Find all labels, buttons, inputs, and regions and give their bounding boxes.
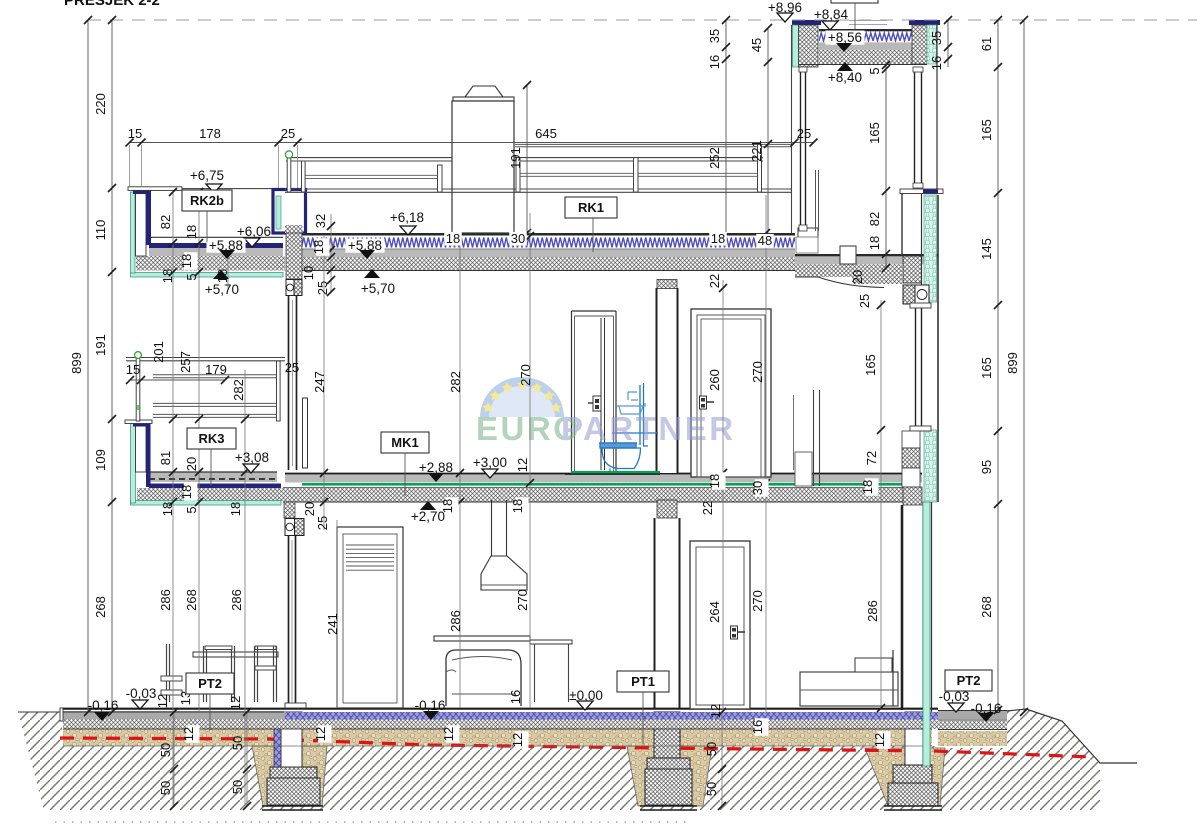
svg-text:12: 12 [872,733,887,747]
svg-text:5: 5 [867,67,882,74]
svg-text:268: 268 [979,596,994,618]
svg-text:35: 35 [707,29,722,43]
svg-text:645: 645 [535,126,557,141]
svg-text:RK2b: RK2b [190,193,224,208]
svg-text:286: 286 [448,610,463,632]
svg-text:165: 165 [863,354,878,376]
svg-text:72: 72 [864,451,879,465]
svg-text:18: 18 [711,231,725,246]
svg-text:5: 5 [184,273,199,280]
svg-text:+5,70: +5,70 [361,281,395,296]
svg-text:5: 5 [184,506,199,513]
svg-text:270: 270 [515,589,530,611]
svg-text:18: 18 [228,502,243,516]
svg-text:252: 252 [707,147,722,169]
svg-text:95: 95 [979,460,994,474]
svg-text:270: 270 [750,361,765,383]
svg-text:145: 145 [979,238,994,260]
svg-text:18: 18 [707,474,722,488]
svg-text:-0,16: -0,16 [88,698,119,713]
svg-text:12: 12 [313,727,328,741]
svg-text:+6,18: +6,18 [390,210,424,225]
svg-text:18: 18 [179,485,194,499]
svg-text:241: 241 [325,613,340,635]
svg-text:286: 286 [229,589,244,611]
svg-text:247: 247 [312,371,327,393]
svg-text:16: 16 [508,690,523,704]
svg-text:25: 25 [857,294,872,308]
svg-text:48: 48 [758,233,772,248]
svg-text:18: 18 [446,231,460,246]
svg-text:191: 191 [508,147,523,169]
svg-text:50: 50 [158,781,173,795]
svg-text:32: 32 [313,214,328,228]
svg-text:PT2: PT2 [957,673,981,688]
svg-text:16: 16 [750,720,765,734]
svg-text:25: 25 [315,516,330,530]
svg-text:20: 20 [184,457,199,471]
svg-text:22: 22 [700,501,715,515]
svg-text:15: 15 [128,126,142,141]
svg-text:+8,56: +8,56 [828,30,862,45]
svg-text:12: 12 [181,727,196,741]
svg-text:81: 81 [158,451,173,465]
svg-text:+2,88: +2,88 [419,460,453,475]
svg-text:61: 61 [979,37,994,51]
svg-text:899: 899 [69,352,84,374]
svg-text:50: 50 [704,782,719,796]
svg-text:282: 282 [231,379,246,401]
svg-text:201: 201 [151,341,166,363]
svg-text:268: 268 [93,596,108,618]
svg-text:257: 257 [178,351,193,373]
svg-text:109: 109 [93,449,108,471]
svg-text:82: 82 [867,212,882,226]
svg-text:35: 35 [929,31,944,45]
svg-text:270: 270 [750,590,765,612]
svg-text:+8,84: +8,84 [814,7,849,22]
svg-text:RK1: RK1 [578,200,604,215]
svg-text:286: 286 [865,600,880,622]
svg-text:16: 16 [707,55,722,69]
svg-text:282: 282 [448,371,463,393]
svg-text:25: 25 [285,360,299,375]
svg-text:PT2: PT2 [198,676,222,691]
svg-text:178: 178 [199,126,221,141]
svg-text:10: 10 [301,266,316,280]
svg-text:18: 18 [160,269,175,283]
svg-text:PT1: PT1 [631,674,655,689]
svg-text:220: 220 [93,93,108,115]
svg-text:25: 25 [315,281,330,295]
svg-text:-0,03: -0,03 [126,686,157,701]
svg-text:110: 110 [93,220,108,241]
svg-text:RK3: RK3 [198,431,224,446]
svg-text:50: 50 [230,780,245,794]
svg-text:12: 12 [228,696,243,710]
svg-text:18: 18 [184,225,199,239]
svg-text:50: 50 [704,742,719,756]
svg-text:12: 12 [155,694,170,708]
svg-text:286: 286 [158,589,173,611]
svg-text:-0,16: -0,16 [415,698,446,713]
svg-text:268: 268 [184,589,199,611]
svg-text:16: 16 [929,56,944,70]
svg-text:18: 18 [860,480,875,494]
svg-text:45: 45 [749,38,764,52]
svg-text:12: 12 [708,704,723,718]
svg-text:+2,70: +2,70 [411,509,445,524]
svg-text:22: 22 [707,274,722,288]
svg-text:899: 899 [1005,352,1020,374]
svg-text:12: 12 [510,733,525,747]
svg-text:25: 25 [281,126,295,141]
svg-text:50: 50 [158,743,173,757]
svg-text:+3,00: +3,00 [473,455,507,470]
svg-text:20: 20 [302,502,317,516]
svg-text:18: 18 [867,236,882,250]
svg-text:PARTNER: PARTNER [561,410,736,447]
svg-text:264: 264 [707,601,722,623]
svg-text:270: 270 [518,364,533,386]
svg-text:12: 12 [441,727,456,741]
svg-text:+6,06: +6,06 [237,224,271,239]
svg-text:260: 260 [707,369,722,391]
svg-text:82: 82 [158,215,173,229]
svg-text:221: 221 [749,140,764,162]
svg-text:20: 20 [850,270,865,284]
svg-text:15: 15 [126,362,140,377]
svg-text:25: 25 [797,126,811,141]
svg-text:191: 191 [93,334,108,356]
svg-text:179: 179 [205,362,227,377]
svg-text:PRESJEK 2-2: PRESJEK 2-2 [64,0,160,9]
svg-text:165: 165 [979,119,994,141]
svg-text:165: 165 [979,357,994,379]
svg-text:MK1: MK1 [391,435,418,450]
svg-text:18: 18 [510,499,525,513]
svg-text:18: 18 [311,240,326,254]
svg-text:12: 12 [515,458,530,472]
svg-text:+6,75: +6,75 [190,168,224,183]
svg-text:30: 30 [511,231,525,246]
svg-text:+8,40: +8,40 [828,70,862,85]
svg-text:50: 50 [230,736,245,750]
svg-text:30: 30 [750,481,765,495]
svg-text:+3,08: +3,08 [235,450,269,465]
svg-text:18: 18 [179,254,194,268]
svg-text:165: 165 [867,122,882,144]
svg-text:18: 18 [160,502,175,516]
svg-text:+5,70: +5,70 [205,282,239,297]
